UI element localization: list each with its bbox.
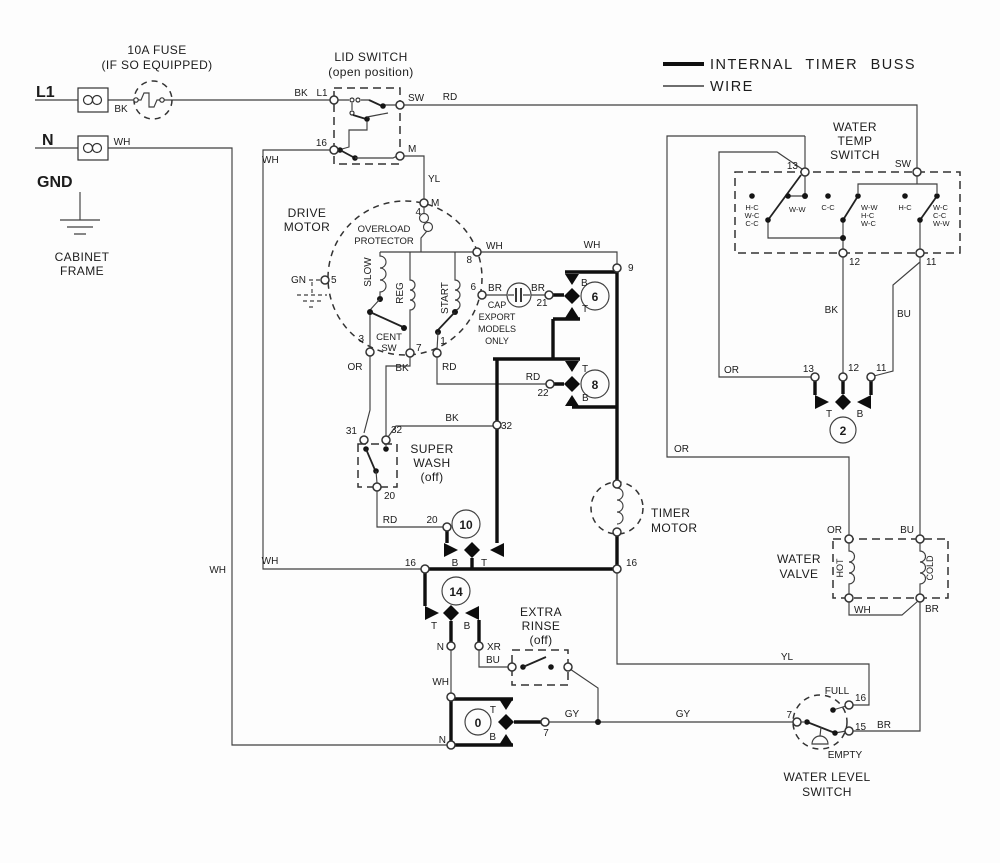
contact-10-t: T	[481, 558, 487, 569]
terminal-label-1: 1	[440, 336, 446, 347]
extra-rinse-title-3: (off)	[529, 633, 552, 647]
contact-14-t: T	[431, 621, 437, 632]
contact-6-t: T	[582, 304, 588, 315]
extra-rinse-switch: EXTRA RINSE (off)	[508, 605, 572, 685]
cabinet-frame-2: FRAME	[60, 264, 104, 278]
wire-label-br3: BR	[925, 604, 939, 615]
terminal-label-21: 21	[536, 298, 548, 309]
terminal-label-20: 20	[384, 491, 396, 502]
contact-pos-1d: W-W	[789, 205, 806, 214]
overload-protector	[420, 207, 433, 252]
contact-pos-2a: C-C	[821, 203, 835, 212]
water-valve-title-1: WATER	[777, 552, 821, 566]
wire-label-bk: BK	[114, 104, 128, 115]
wire-label-bu2: BU	[897, 309, 911, 320]
terminal-label-m2: M	[431, 198, 439, 209]
terminal-label-16l: 16	[405, 558, 417, 569]
terminal-label-7c: 7	[786, 710, 792, 721]
winding-label-slow: SLOW	[363, 257, 374, 287]
terminal-label-13: 13	[787, 161, 799, 172]
wire-label-rd: RD	[443, 92, 457, 103]
contact-number-6: 6	[592, 290, 599, 304]
drive-motor-title-1: DRIVE	[288, 206, 327, 220]
wire-label-br2: BR	[531, 283, 545, 294]
contact-2-b: B	[857, 409, 864, 420]
timer-motor: TIMER MOTOR	[591, 480, 697, 536]
water-level-empty: EMPTY	[828, 750, 863, 761]
terminal-label-12b: 12	[848, 363, 860, 374]
contact-8-t: T	[582, 364, 588, 375]
terminal-label-sw2: SW	[895, 159, 912, 170]
cabinet-frame-1: CABINET	[55, 250, 110, 264]
legend-buss-label: INTERNAL TIMER BUSS	[710, 57, 916, 73]
cent-sw-label-2: SW	[381, 343, 396, 354]
terminal-label-8: 8	[466, 255, 472, 266]
valve-hot-label: HOT	[835, 558, 845, 578]
terminal-label-15: 15	[855, 722, 867, 733]
water-temp-switch: WATER TEMP SWITCH 13 SW 12 11 H-C W-C C-…	[735, 120, 960, 268]
contact-number-8: 8	[592, 378, 599, 392]
valve-cold-label: COLD	[925, 555, 935, 581]
terminal-label-6: 6	[470, 282, 476, 293]
legend-wire-label: WIRE	[710, 79, 754, 95]
terminal-label-n2: N	[439, 735, 446, 746]
power-input: L1 N GND BK WH 10A FUSE (IF SO EQUIPPED)…	[36, 43, 213, 278]
water-valve-title-2: VALVE	[780, 567, 819, 581]
wire-label-gn: GN	[291, 275, 306, 286]
drive-motor: DRIVE MOTOR OVERLOAD PROTECTOR SLOW REG …	[284, 198, 503, 374]
contact-pos-3d: W-W	[933, 219, 950, 228]
wire-label-rd4: RD	[383, 515, 397, 526]
wire-label-wh4: WH	[584, 240, 601, 251]
overload-label-2: PROTECTOR	[354, 236, 414, 247]
wire-label-rd2: RD	[442, 362, 456, 373]
wire-label-br: BR	[488, 283, 502, 294]
contact-10-b: B	[452, 558, 459, 569]
contact-2-t: T	[826, 409, 832, 420]
super-wash-title-1: SUPER	[410, 442, 453, 456]
n-label: N	[42, 132, 54, 149]
wire-label-bk5: BK	[825, 305, 839, 316]
wire-label-bk3: BK	[395, 363, 409, 374]
wire-label-gy1: GY	[565, 709, 580, 720]
contact-pos-2d: W-C	[861, 219, 876, 228]
gnd-label: GND	[37, 174, 73, 191]
wire-label-bu3: BU	[900, 525, 914, 536]
cap-note-3: MODELS	[478, 324, 516, 334]
terminal-label-20b: 20	[426, 515, 438, 526]
water-valve: WATER VALVE HOT COLD OR BU WH BR	[777, 525, 948, 616]
terminal-label-l1: L1	[316, 88, 328, 99]
wire-label-bk4: BK	[445, 413, 459, 424]
extra-rinse-title-2: RINSE	[522, 619, 561, 633]
wire-label-bu: BU	[486, 655, 500, 666]
wire-label-rd3: RD	[526, 372, 540, 383]
contact-14-b: B	[464, 621, 471, 632]
terminal-label-22: 22	[537, 388, 549, 399]
cap-note-2: EXPORT	[479, 312, 516, 322]
contact-number-2: 2	[840, 424, 847, 438]
winding-label-start: START	[440, 282, 451, 314]
cent-sw-label-1: CENT	[376, 332, 402, 343]
wire-label-or: OR	[348, 362, 363, 373]
super-wash-title-2: WASH	[413, 456, 450, 470]
terminal-label-7b: 7	[543, 728, 549, 739]
wire-label-wh7: WH	[854, 605, 871, 616]
l1-label: L1	[36, 84, 55, 101]
water-level-switch: FULL EMPTY 7 16 15 BR YL WATER LEVEL SWI…	[781, 652, 891, 799]
cap-note-1: CAP	[488, 300, 507, 310]
terminal-label-5: 5	[331, 275, 337, 286]
overload-label-1: OVERLOAD	[358, 224, 411, 235]
wire-label-or2: OR	[724, 365, 739, 376]
wire-label-wh: WH	[114, 137, 131, 148]
terminal-label-11: 11	[926, 257, 937, 268]
cap-note-4: ONLY	[485, 336, 509, 346]
lid-switch-title: LID SWITCH	[334, 50, 407, 64]
contact-number-14: 14	[449, 585, 463, 599]
water-temp-title-3: SWITCH	[830, 148, 880, 162]
wire-label-or3: OR	[827, 525, 842, 536]
water-level-title-1: WATER LEVEL	[783, 770, 870, 784]
timer-contact-14: 14 T B N XR WH BU	[425, 577, 501, 688]
terminal-label-n: N	[437, 642, 444, 653]
legend: INTERNAL TIMER BUSS WIRE	[663, 57, 916, 95]
terminal-label-16b: 16	[855, 693, 867, 704]
water-level-title-2: SWITCH	[802, 785, 852, 799]
water-temp-title-1: WATER	[833, 120, 877, 134]
timer-motor-title-2: MOTOR	[651, 521, 697, 535]
schematic-canvas: INTERNAL TIMER BUSS WIRE L1 N GND BK WH …	[0, 0, 1000, 863]
wires	[35, 100, 937, 745]
wire-label-yl2: YL	[781, 652, 794, 663]
wire-label-gy2: GY	[676, 709, 691, 720]
contact-number-10: 10	[459, 518, 473, 532]
wire-label-yl: YL	[428, 174, 441, 185]
timer-motor-title-1: TIMER	[651, 506, 690, 520]
wire-label-wh2: WH	[262, 155, 279, 166]
terminal-label-m: M	[408, 144, 416, 155]
terminal-label-9: 9	[628, 263, 634, 274]
extra-rinse-title-1: EXTRA	[520, 605, 562, 619]
terminal-label-32: 32	[391, 425, 403, 436]
terminal-label-12: 12	[849, 257, 861, 268]
schematic-page: INTERNAL TIMER BUSS WIRE L1 N GND BK WH …	[0, 0, 1000, 863]
terminal-label-xr: XR	[487, 642, 501, 653]
terminal-label-16: 16	[316, 138, 328, 149]
super-wash-switch: SUPER WASH (off) 31 32 20 RD BK 32	[346, 413, 513, 526]
water-temp-title-2: TEMP	[838, 134, 873, 148]
terminal-label-32b: 32	[501, 421, 513, 432]
lid-switch-subtitle: (open position)	[328, 65, 413, 79]
water-level-full: FULL	[825, 686, 850, 697]
wire-label-wh3: WH	[486, 241, 503, 252]
terminal-label-7: 7	[416, 343, 422, 354]
fuse-title-2: (IF SO EQUIPPED)	[101, 58, 212, 72]
wire-label-br4: BR	[877, 720, 891, 731]
terminal-label-4: 4	[415, 207, 421, 218]
super-wash-title-3: (off)	[420, 470, 443, 484]
timer-contact-0: 0 T B 7 N GY GY	[439, 693, 691, 749]
timer-contact-10: 10 20 B T	[426, 510, 504, 569]
drive-motor-title-2: MOTOR	[284, 220, 330, 234]
contact-8-b: B	[582, 393, 589, 404]
winding-label-reg: REG	[395, 282, 406, 304]
contact-0-b: B	[489, 732, 496, 743]
contact-pos-3a: H-C	[898, 203, 912, 212]
wire-label-wh6: WH	[432, 677, 449, 688]
contact-number-0: 0	[475, 716, 482, 730]
wire-label-bk2: BK	[294, 88, 308, 99]
terminal-label-3: 3	[358, 334, 364, 345]
contact-pos-1c: C-C	[745, 219, 759, 228]
terminal-label-31: 31	[346, 426, 358, 437]
contact-6-b: B	[581, 278, 588, 289]
wire-label-or-mid: OR	[674, 444, 689, 455]
wire-label-wh-left: WH	[209, 565, 226, 576]
ground-symbol: CABINET FRAME	[55, 192, 110, 278]
terminal-label-16r: 16	[626, 558, 638, 569]
contact-0-t: T	[490, 705, 496, 716]
lid-switch: LID SWITCH (open position) BK L1 SW RD 1…	[262, 50, 457, 185]
terminal-label-11b: 11	[876, 363, 887, 374]
terminal-label-sw: SW	[408, 93, 425, 104]
fuse-title-1: 10A FUSE	[127, 43, 186, 57]
